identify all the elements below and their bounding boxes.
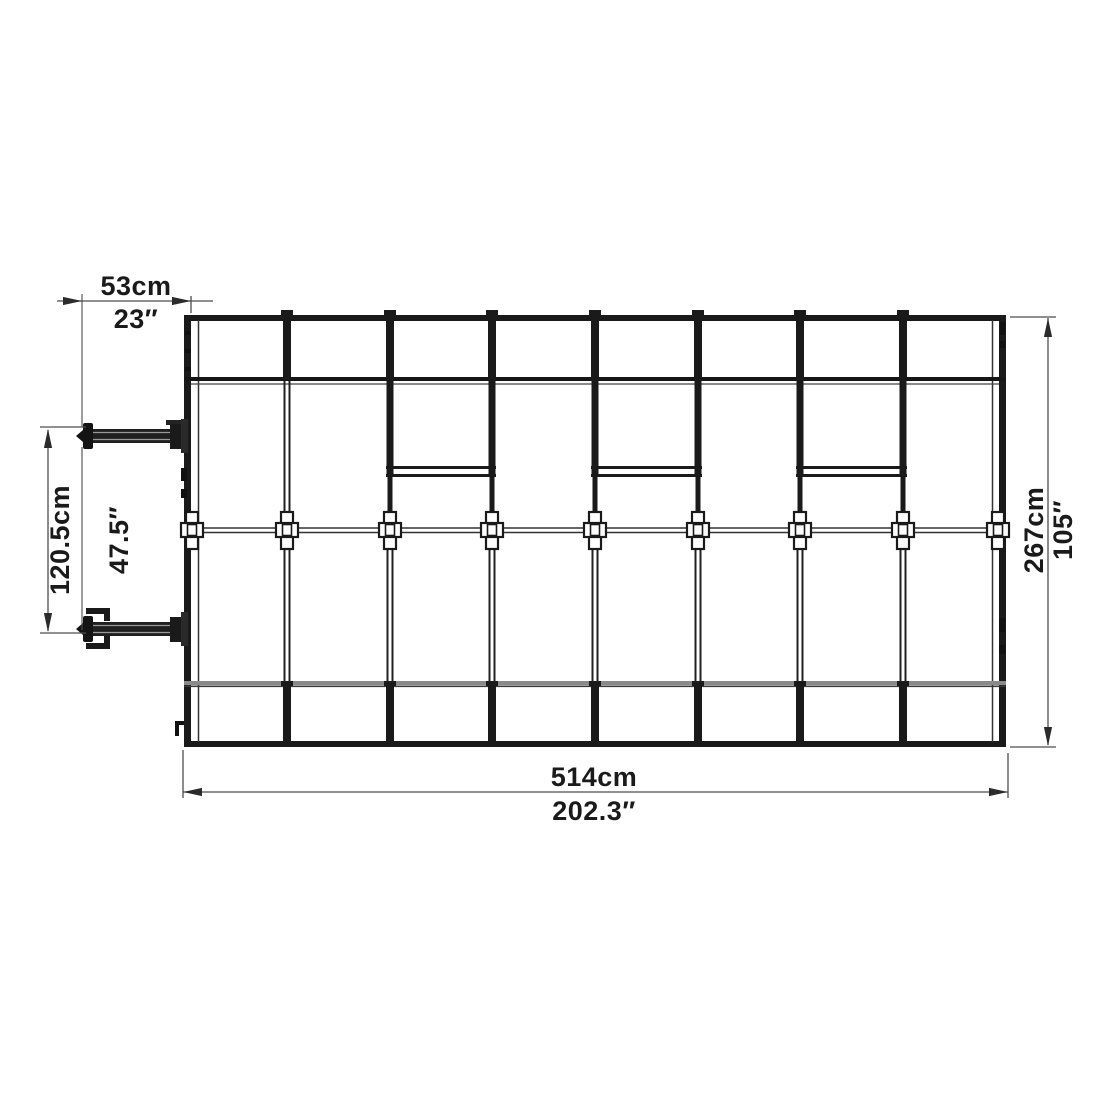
- roof-mullion-line: [284, 534, 286, 682]
- arrowhead: [1044, 727, 1052, 746]
- roof-mullion-line: [489, 534, 491, 682]
- top-band-mullion: [283, 314, 291, 380]
- dim-right-cm-label: 267cm: [1019, 487, 1049, 574]
- vent-side-frame: [797, 379, 804, 477]
- ridge-wall-connector-left: [188, 525, 197, 536]
- top-band-mullion: [694, 314, 702, 380]
- ridge-cross-connector: [591, 525, 600, 536]
- roof-vent-windows: [386, 379, 907, 528]
- roof-mullion-line: [700, 534, 702, 682]
- bottom-band-mullion: [694, 684, 702, 743]
- roof-mullion-line: [905, 534, 907, 682]
- roof-mullion-line: [797, 534, 799, 682]
- dim-top-cm-label: 53cm: [100, 271, 171, 301]
- ridge-wall-connector-right: [994, 525, 1003, 536]
- roof-mullion-line: [289, 381, 291, 527]
- roof-mullion-line: [494, 534, 496, 682]
- dim-bottom-inch-label: 202.3″: [552, 796, 636, 826]
- vent-side-frame: [592, 379, 599, 477]
- greenhouse-frame: [175, 310, 1009, 747]
- ridge-cross-connector: [796, 525, 805, 536]
- ridge-cross-connector: [899, 525, 908, 536]
- roof-mullion-line: [284, 381, 286, 527]
- roof-mullion-line: [592, 534, 594, 682]
- vent-bottom-line: [796, 466, 907, 469]
- arrowhead: [172, 297, 191, 305]
- roof-mullion-line: [597, 534, 599, 682]
- top-band-mullion: [386, 314, 394, 380]
- dimension-bottom: 514cm 202.3″: [183, 750, 1008, 826]
- roof-mullion-line: [802, 534, 804, 682]
- bottom-band-mullion: [796, 684, 804, 743]
- vent-side-frame: [387, 379, 394, 477]
- dimension-right: 267cm 105″: [1010, 317, 1078, 747]
- ridge-cross-connector: [283, 525, 292, 536]
- arrowhead: [183, 788, 202, 796]
- hinge-wall-plate: [181, 612, 188, 646]
- vent-side-frame: [489, 379, 496, 477]
- roof-mullion-line: [392, 534, 394, 682]
- top-band-mullion: [899, 314, 907, 380]
- bottom-band-mullion: [283, 684, 291, 743]
- dim-left-cm-label: 120.5cm: [45, 485, 75, 595]
- ridge-cross-connector: [488, 525, 497, 536]
- roof-mullion-line: [900, 534, 902, 682]
- arrowhead: [63, 297, 82, 305]
- ridge-cross-connector: [386, 525, 395, 536]
- bottom-band-mullion: [899, 684, 907, 743]
- greenhouse-top-view-drawing: 53cm 23″ 120.5cm 47.5″ 267cm 105″ 514cm …: [0, 0, 1096, 1096]
- roof-mullion-line: [695, 534, 697, 682]
- vent-bottom-edge-line: [796, 474, 907, 477]
- vent-side-frame: [695, 379, 702, 477]
- arrowhead: [1044, 318, 1052, 337]
- dimension-drawing-canvas: 53cm 23″ 120.5cm 47.5″ 267cm 105″ 514cm …: [0, 0, 1096, 1096]
- vent-bottom-line: [591, 466, 702, 469]
- dim-left-inch-label: 47.5″: [104, 506, 134, 574]
- bottom-band-mullion: [591, 684, 599, 743]
- vent-bottom-line: [386, 466, 496, 469]
- roof-mullion-line: [387, 534, 389, 682]
- dim-right-inch-label: 105″: [1048, 500, 1078, 560]
- roof-mullion-line: [289, 534, 291, 682]
- vent-bottom-edge-line: [386, 474, 496, 477]
- vent-bottom-edge-line: [591, 474, 702, 477]
- dim-bottom-cm-label: 514cm: [551, 762, 638, 792]
- arrowhead: [44, 429, 52, 448]
- bottom-band-mullion: [386, 684, 394, 743]
- hinge-wall-plate: [181, 419, 188, 453]
- top-band-mullion: [591, 314, 599, 380]
- arrowhead: [989, 788, 1008, 796]
- top-band-mullion: [488, 314, 496, 380]
- ridge-cross-connector: [694, 525, 703, 536]
- vent-side-frame: [900, 379, 907, 477]
- bottom-band-mullion: [488, 684, 496, 743]
- dimension-left: 120.5cm 47.5″: [40, 427, 134, 633]
- ridge-connectors: [181, 512, 1009, 549]
- top-band-mullion: [796, 314, 804, 380]
- hinge-pin: [83, 616, 93, 642]
- arrowhead: [44, 613, 52, 632]
- dim-top-inch-label: 23″: [114, 304, 158, 334]
